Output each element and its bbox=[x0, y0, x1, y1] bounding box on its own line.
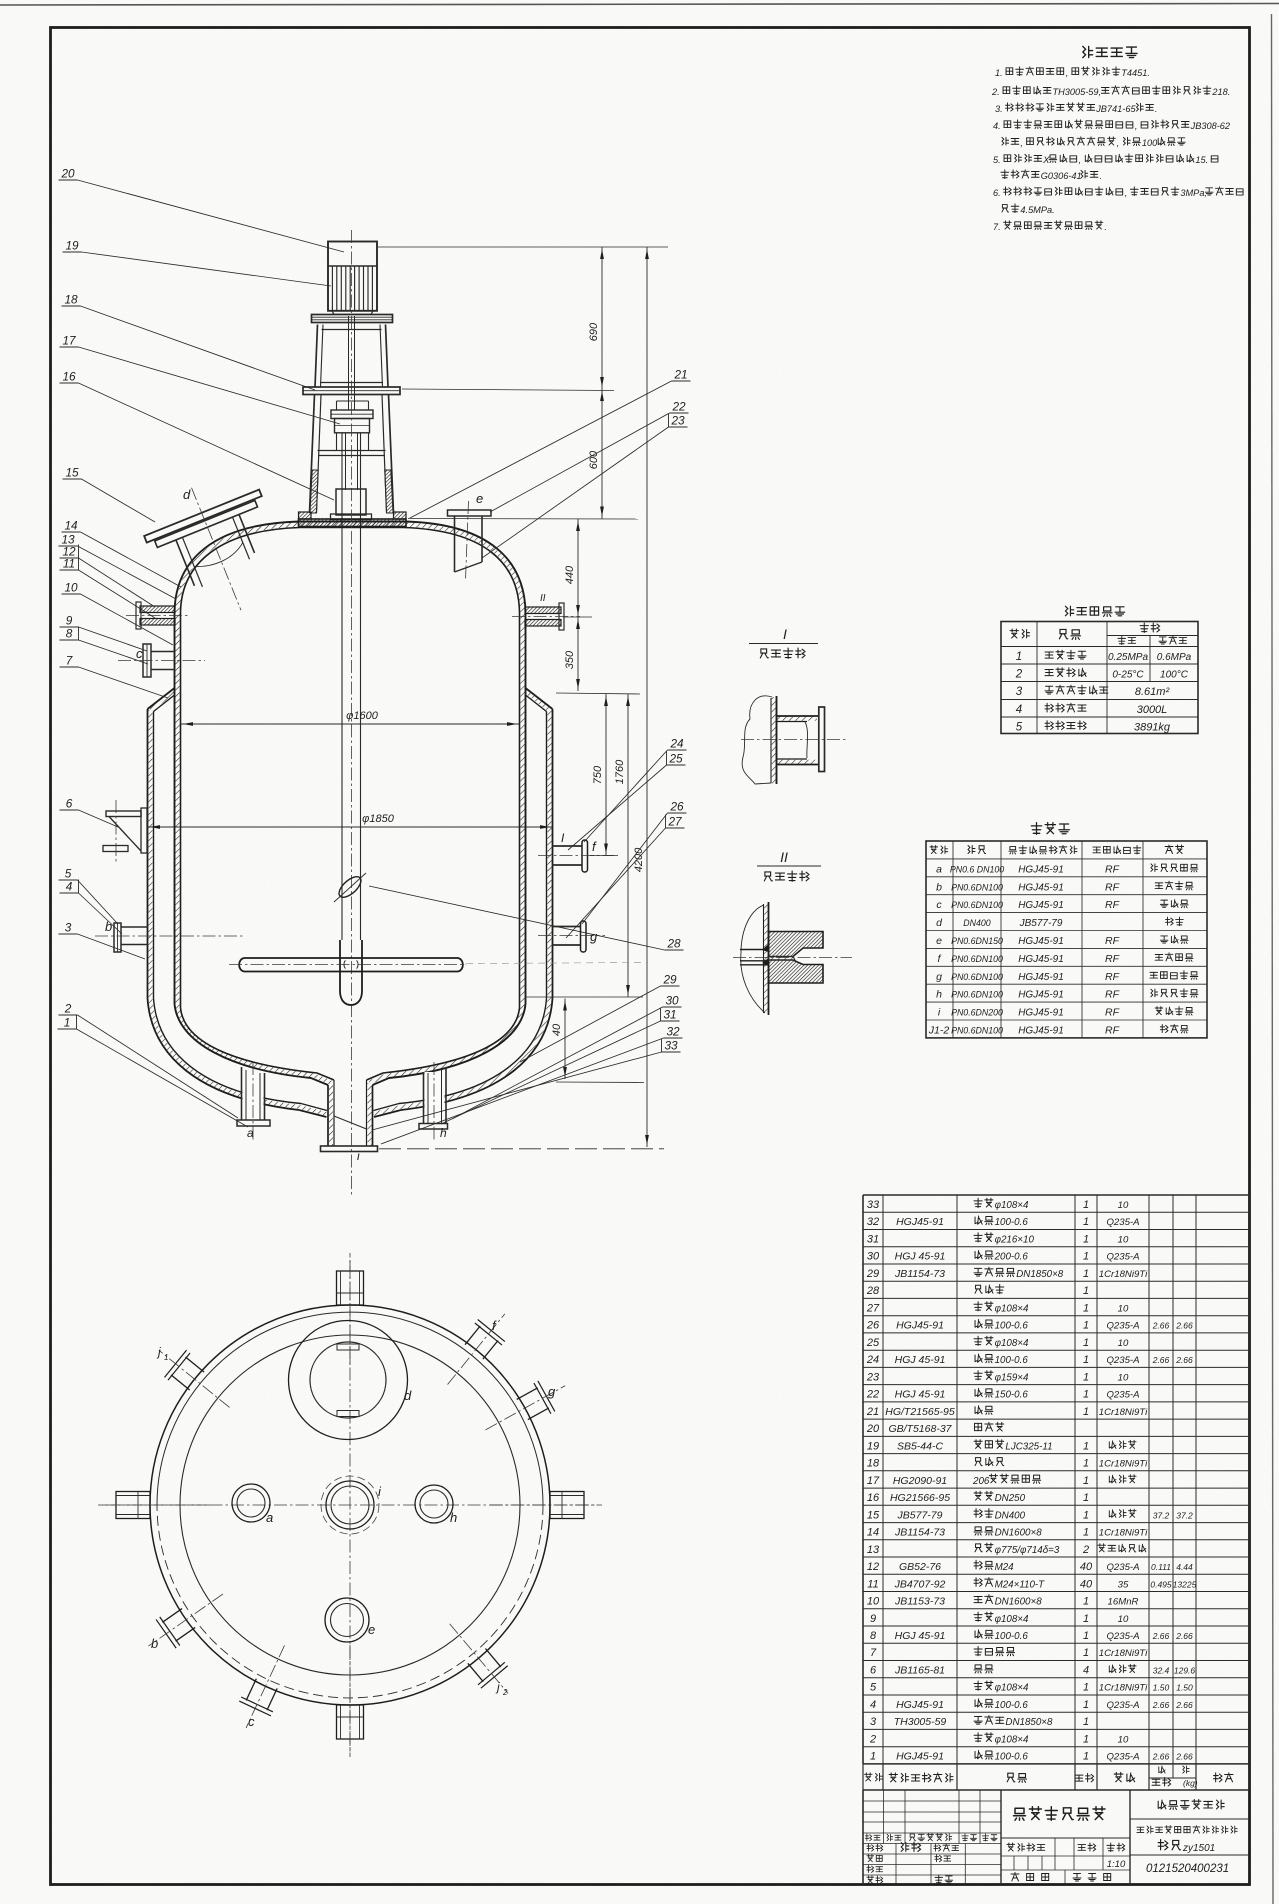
svg-text:23: 23 bbox=[866, 1371, 880, 1383]
svg-text:1Cr18Ni9Ti: 1Cr18Ni9Ti bbox=[1099, 1407, 1148, 1418]
svg-text:600: 600 bbox=[588, 450, 600, 469]
svg-text:1: 1 bbox=[1083, 1682, 1089, 1694]
svg-text:27: 27 bbox=[866, 1302, 880, 1314]
svg-text:30: 30 bbox=[665, 994, 679, 1008]
svg-text:d: d bbox=[183, 487, 191, 502]
svg-text:M24×110-T: M24×110-T bbox=[995, 1579, 1046, 1590]
svg-text:Q235-A: Q235-A bbox=[1106, 1217, 1139, 1228]
svg-text:HGJ45-91: HGJ45-91 bbox=[1018, 1008, 1064, 1019]
svg-text:Q235-A: Q235-A bbox=[1106, 1252, 1139, 1263]
svg-text:1Cr18Ni9Ti: 1Cr18Ni9Ti bbox=[1099, 1269, 1148, 1280]
svg-text:1: 1 bbox=[1083, 1371, 1089, 1383]
svg-text:19: 19 bbox=[65, 239, 79, 253]
svg-text:2.66: 2.66 bbox=[1152, 1700, 1170, 1710]
svg-text:PN0.6DN100: PN0.6DN100 bbox=[951, 972, 1003, 982]
svg-text:1: 1 bbox=[1083, 1527, 1089, 1539]
svg-text:0.25MPa: 0.25MPa bbox=[1108, 652, 1148, 663]
svg-text:31: 31 bbox=[867, 1234, 879, 1246]
svg-text:25: 25 bbox=[668, 752, 683, 766]
svg-text:20: 20 bbox=[60, 167, 75, 181]
svg-text:100-0.6: 100-0.6 bbox=[995, 1321, 1029, 1332]
svg-text:100-0.6: 100-0.6 bbox=[995, 1752, 1029, 1763]
svg-text:7: 7 bbox=[66, 654, 73, 668]
svg-text:10: 10 bbox=[1118, 1303, 1129, 1314]
svg-text:24: 24 bbox=[669, 737, 684, 751]
svg-text:28: 28 bbox=[666, 937, 681, 951]
svg-text:1Cr18Ni9Ti: 1Cr18Ni9Ti bbox=[1099, 1459, 1148, 1470]
svg-text:c: c bbox=[936, 899, 942, 911]
svg-text:HGJ45-91: HGJ45-91 bbox=[1018, 900, 1064, 911]
svg-text:3: 3 bbox=[1016, 686, 1023, 698]
svg-text:15: 15 bbox=[65, 466, 79, 480]
svg-text:30: 30 bbox=[867, 1251, 880, 1263]
svg-text:HGJ45-91: HGJ45-91 bbox=[1018, 954, 1064, 965]
svg-text:HGJ45-91: HGJ45-91 bbox=[896, 1320, 944, 1332]
svg-text:HGJ45-91: HGJ45-91 bbox=[1018, 972, 1064, 983]
svg-text:0-25°C: 0-25°C bbox=[1112, 670, 1144, 681]
svg-text:1.50: 1.50 bbox=[1176, 1683, 1193, 1693]
svg-text:10: 10 bbox=[64, 581, 78, 595]
svg-text:5: 5 bbox=[65, 867, 72, 881]
svg-text:37.2: 37.2 bbox=[1176, 1510, 1193, 1520]
svg-text:10: 10 bbox=[1118, 1372, 1129, 1383]
svg-text:16: 16 bbox=[62, 370, 76, 384]
svg-text:g: g bbox=[590, 929, 598, 944]
svg-text:φ1600: φ1600 bbox=[346, 710, 379, 722]
svg-text:RF: RF bbox=[1105, 953, 1120, 965]
svg-text:0.495: 0.495 bbox=[1150, 1579, 1172, 1589]
svg-text:1760: 1760 bbox=[614, 759, 626, 784]
svg-text:100-0.6: 100-0.6 bbox=[995, 1700, 1029, 1711]
svg-text:33: 33 bbox=[867, 1199, 880, 1211]
svg-text:M24: M24 bbox=[995, 1562, 1015, 1573]
svg-text:DN400: DN400 bbox=[995, 1510, 1026, 1521]
svg-text:17: 17 bbox=[867, 1475, 880, 1487]
svg-text:1: 1 bbox=[870, 1751, 876, 1763]
svg-text:40: 40 bbox=[1080, 1578, 1093, 1590]
svg-text:0.6MPa: 0.6MPa bbox=[1157, 652, 1192, 663]
svg-text:GB52-76: GB52-76 bbox=[899, 1561, 941, 1573]
svg-text:1: 1 bbox=[1083, 1509, 1089, 1521]
svg-text:13: 13 bbox=[867, 1544, 880, 1556]
svg-text:29: 29 bbox=[866, 1268, 879, 1280]
svg-text:100-0.6: 100-0.6 bbox=[995, 1355, 1029, 1366]
svg-text:32: 32 bbox=[867, 1216, 879, 1228]
svg-text:(kg): (kg) bbox=[1183, 1778, 1198, 1788]
svg-text:φ108×4: φ108×4 bbox=[995, 1303, 1029, 1314]
svg-text:0121520400231: 0121520400231 bbox=[1146, 1863, 1229, 1875]
svg-text:40: 40 bbox=[1080, 1561, 1093, 1573]
svg-text:1: 1 bbox=[1083, 1320, 1089, 1332]
svg-text:a: a bbox=[936, 863, 942, 875]
svg-text:13225: 13225 bbox=[1173, 1579, 1197, 1589]
svg-text:.: . bbox=[1100, 171, 1103, 181]
svg-text:SB5-44-C: SB5-44-C bbox=[897, 1440, 944, 1452]
svg-text:33: 33 bbox=[664, 1039, 678, 1053]
svg-text:100-0.6: 100-0.6 bbox=[995, 1217, 1029, 1228]
svg-text:e: e bbox=[476, 491, 483, 506]
svg-text:4: 4 bbox=[870, 1699, 876, 1711]
svg-text:a: a bbox=[247, 1126, 254, 1140]
svg-text:DN1600×8: DN1600×8 bbox=[995, 1528, 1043, 1539]
svg-text:28: 28 bbox=[866, 1285, 880, 1297]
svg-text:JB1154-73: JB1154-73 bbox=[894, 1268, 945, 1280]
svg-text:2.66: 2.66 bbox=[1152, 1752, 1170, 1762]
svg-text:I: I bbox=[783, 626, 787, 642]
svg-text:RF: RF bbox=[1105, 1025, 1120, 1037]
svg-text:2.66: 2.66 bbox=[1175, 1355, 1193, 1365]
svg-text:4.: 4. bbox=[993, 121, 1001, 131]
svg-text:HGJ 45-91: HGJ 45-91 bbox=[895, 1251, 946, 1263]
svg-text:JB577-79: JB577-79 bbox=[897, 1509, 943, 1521]
svg-text:24: 24 bbox=[866, 1354, 879, 1366]
svg-text:PN0.6DN200: PN0.6DN200 bbox=[951, 1008, 1003, 1018]
svg-text:5: 5 bbox=[870, 1682, 877, 1694]
svg-text:JB1154-73: JB1154-73 bbox=[894, 1527, 945, 1539]
svg-text:6.: 6. bbox=[993, 188, 1001, 198]
svg-text:PN0.6DN100: PN0.6DN100 bbox=[951, 900, 1003, 910]
svg-text:22: 22 bbox=[866, 1389, 879, 1401]
svg-text:GB/T5168-37: GB/T5168-37 bbox=[888, 1423, 952, 1435]
svg-text:HGJ45-91: HGJ45-91 bbox=[896, 1216, 944, 1228]
svg-text:φ216×10: φ216×10 bbox=[995, 1235, 1035, 1246]
svg-text:129.6: 129.6 bbox=[1174, 1666, 1196, 1676]
svg-text:8: 8 bbox=[870, 1630, 877, 1642]
svg-text:1: 1 bbox=[1083, 1630, 1089, 1642]
svg-text:4.5MPa.: 4.5MPa. bbox=[1020, 205, 1054, 215]
svg-text:11: 11 bbox=[63, 557, 75, 571]
svg-text:206: 206 bbox=[972, 1476, 990, 1487]
svg-text:1: 1 bbox=[1083, 1751, 1089, 1763]
svg-text:HGJ45-91: HGJ45-91 bbox=[1018, 990, 1064, 1001]
svg-text:.: . bbox=[1155, 104, 1158, 114]
svg-text:10: 10 bbox=[1118, 1734, 1129, 1745]
svg-text:2.66: 2.66 bbox=[1175, 1700, 1193, 1710]
svg-text:J1-2: J1-2 bbox=[928, 1025, 950, 1037]
svg-text:1: 1 bbox=[1083, 1613, 1089, 1625]
svg-text:1: 1 bbox=[1083, 1492, 1089, 1504]
svg-text:g: g bbox=[548, 1384, 556, 1399]
svg-text:2.66: 2.66 bbox=[1152, 1631, 1170, 1641]
svg-text:T4451.: T4451. bbox=[1121, 68, 1150, 78]
svg-text:RF: RF bbox=[1105, 1007, 1120, 1019]
svg-text:2.66: 2.66 bbox=[1175, 1631, 1193, 1641]
svg-text:3MPa,: 3MPa, bbox=[1180, 188, 1207, 198]
svg-text:DN1850×8: DN1850×8 bbox=[1005, 1717, 1053, 1728]
svg-text:1: 1 bbox=[1083, 1596, 1089, 1608]
svg-text:1.50: 1.50 bbox=[1153, 1683, 1170, 1693]
svg-text:DN400: DN400 bbox=[963, 918, 990, 928]
svg-text:.: . bbox=[1104, 222, 1107, 232]
svg-text:TH3005-59: TH3005-59 bbox=[894, 1716, 947, 1728]
svg-text:1Cr18Ni9Ti: 1Cr18Ni9Ti bbox=[1099, 1528, 1148, 1539]
svg-text:PN0.6 DN100: PN0.6 DN100 bbox=[950, 864, 1004, 874]
svg-text:16MnR: 16MnR bbox=[1108, 1597, 1139, 1608]
svg-text:18: 18 bbox=[867, 1458, 880, 1470]
svg-text:15.: 15. bbox=[1195, 155, 1208, 165]
svg-text:7: 7 bbox=[870, 1647, 877, 1659]
svg-text:HGJ45-91: HGJ45-91 bbox=[896, 1699, 944, 1711]
svg-text:φ108×4: φ108×4 bbox=[995, 1200, 1029, 1211]
svg-text:3891kg: 3891kg bbox=[1134, 722, 1171, 734]
svg-text:h: h bbox=[440, 1126, 447, 1140]
svg-text:JB577-79: JB577-79 bbox=[1019, 918, 1063, 929]
svg-text:HGJ45-91: HGJ45-91 bbox=[1018, 882, 1064, 893]
svg-text:HGJ45-91: HGJ45-91 bbox=[1018, 864, 1064, 875]
svg-text:PN0.6DN100: PN0.6DN100 bbox=[951, 990, 1003, 1000]
svg-text:φ1850: φ1850 bbox=[362, 813, 395, 825]
svg-text:8: 8 bbox=[66, 627, 73, 641]
svg-text:1: 1 bbox=[1083, 1733, 1089, 1745]
svg-text:1: 1 bbox=[1016, 651, 1022, 663]
svg-text:,: , bbox=[1135, 121, 1138, 131]
svg-text:16: 16 bbox=[867, 1492, 880, 1504]
svg-text:a: a bbox=[266, 1510, 273, 1525]
svg-text:100°C: 100°C bbox=[1160, 670, 1189, 681]
svg-text:HG2090-91: HG2090-91 bbox=[893, 1475, 947, 1487]
svg-text:2.: 2. bbox=[991, 87, 1000, 97]
svg-text:Q235-A: Q235-A bbox=[1106, 1355, 1139, 1366]
svg-text:Q235-A: Q235-A bbox=[1106, 1752, 1139, 1763]
svg-text:HGJ 45-91: HGJ 45-91 bbox=[895, 1354, 946, 1366]
svg-text:,: , bbox=[1079, 155, 1082, 165]
svg-text:3000L: 3000L bbox=[1137, 704, 1168, 716]
svg-text:b: b bbox=[151, 1636, 158, 1651]
svg-text:HGJ 45-91: HGJ 45-91 bbox=[895, 1389, 946, 1401]
svg-text:22: 22 bbox=[671, 400, 686, 414]
svg-text:G0306-41: G0306-41 bbox=[1041, 171, 1082, 181]
svg-text:TH3005-59,: TH3005-59, bbox=[1053, 87, 1102, 97]
svg-text:h: h bbox=[936, 989, 942, 1001]
svg-text:750: 750 bbox=[592, 765, 604, 784]
svg-text:218.: 218. bbox=[1211, 87, 1230, 97]
svg-text:JB1165-81: JB1165-81 bbox=[894, 1665, 945, 1677]
svg-text:3: 3 bbox=[65, 921, 72, 935]
svg-text:RF: RF bbox=[1105, 935, 1120, 947]
svg-text:JB308-62: JB308-62 bbox=[1190, 121, 1230, 131]
svg-text:1Cr18Ni9Ti: 1Cr18Ni9Ti bbox=[1099, 1648, 1148, 1659]
svg-text:φ108×4: φ108×4 bbox=[995, 1683, 1029, 1694]
svg-text:c: c bbox=[248, 1714, 255, 1729]
svg-text:HGJ45-91: HGJ45-91 bbox=[1018, 936, 1064, 947]
svg-text:Q235-A: Q235-A bbox=[1106, 1700, 1139, 1711]
svg-text:19: 19 bbox=[867, 1440, 879, 1452]
svg-text:4: 4 bbox=[66, 880, 73, 894]
svg-text:PN0.6DN100: PN0.6DN100 bbox=[951, 1026, 1003, 1036]
svg-text:2: 2 bbox=[1082, 1544, 1089, 1556]
svg-text:21: 21 bbox=[673, 368, 687, 382]
svg-text:PN0.6DN100: PN0.6DN100 bbox=[951, 882, 1003, 892]
svg-text:200-0.6: 200-0.6 bbox=[994, 1252, 1029, 1263]
svg-text:440: 440 bbox=[564, 565, 576, 584]
svg-text:DN250: DN250 bbox=[995, 1493, 1026, 1504]
svg-text:RF: RF bbox=[1105, 971, 1120, 983]
svg-text:5: 5 bbox=[1016, 722, 1023, 734]
svg-text:h: h bbox=[450, 1510, 457, 1525]
svg-text:DN1600×8: DN1600×8 bbox=[995, 1597, 1043, 1608]
svg-text:1: 1 bbox=[1083, 1285, 1089, 1297]
svg-text:PN0.6DN150: PN0.6DN150 bbox=[951, 936, 1003, 946]
svg-text:,: , bbox=[1125, 188, 1128, 198]
svg-text:Q235-A: Q235-A bbox=[1106, 1631, 1139, 1642]
svg-text:10: 10 bbox=[1118, 1235, 1129, 1246]
svg-text:2: 2 bbox=[1015, 669, 1023, 681]
svg-text:4: 4 bbox=[1083, 1665, 1089, 1677]
svg-text:1: 1 bbox=[1083, 1337, 1089, 1349]
svg-text:14: 14 bbox=[867, 1527, 879, 1539]
svg-text:21: 21 bbox=[866, 1406, 879, 1418]
svg-text:31: 31 bbox=[663, 1008, 676, 1022]
svg-text:φ775/φ714δ=3: φ775/φ714δ=3 bbox=[995, 1545, 1060, 1556]
svg-text:HGJ 45-91: HGJ 45-91 bbox=[895, 1630, 946, 1642]
svg-text:690: 690 bbox=[588, 322, 600, 341]
svg-text:17: 17 bbox=[62, 334, 76, 348]
svg-text:12: 12 bbox=[867, 1561, 879, 1573]
svg-text:φ108×4: φ108×4 bbox=[995, 1614, 1029, 1625]
svg-text:Q235-A: Q235-A bbox=[1106, 1321, 1139, 1332]
svg-text:b: b bbox=[936, 881, 942, 893]
svg-text:35: 35 bbox=[1118, 1579, 1129, 1590]
svg-text:1: 1 bbox=[1083, 1234, 1089, 1246]
svg-text:HG/T21565-95: HG/T21565-95 bbox=[885, 1406, 955, 1418]
svg-text:32: 32 bbox=[666, 1025, 680, 1039]
svg-text:2: 2 bbox=[869, 1733, 876, 1745]
svg-text:40: 40 bbox=[551, 1023, 563, 1036]
svg-text:4.44: 4.44 bbox=[1176, 1562, 1193, 1572]
svg-text:φ108×4: φ108×4 bbox=[995, 1734, 1029, 1745]
svg-text:1: 1 bbox=[1083, 1458, 1089, 1470]
svg-text:14: 14 bbox=[64, 519, 78, 533]
svg-text:2.66: 2.66 bbox=[1152, 1321, 1170, 1331]
svg-text:2.66: 2.66 bbox=[1175, 1752, 1193, 1762]
svg-text:2: 2 bbox=[64, 1002, 72, 1016]
svg-text:JB741-65: JB741-65 bbox=[1095, 104, 1136, 114]
svg-text:1: 1 bbox=[1083, 1440, 1089, 1452]
svg-text:350: 350 bbox=[564, 650, 576, 669]
svg-text:1: 1 bbox=[1083, 1268, 1089, 1280]
svg-text:,: , bbox=[1117, 138, 1120, 148]
svg-text:DN1850×8: DN1850×8 bbox=[1016, 1269, 1064, 1280]
svg-text:100: 100 bbox=[1142, 138, 1158, 148]
svg-text:23: 23 bbox=[670, 414, 685, 428]
svg-text:1: 1 bbox=[1083, 1389, 1089, 1401]
svg-text:1: 1 bbox=[1083, 1699, 1089, 1711]
svg-text:1:10: 1:10 bbox=[1107, 1859, 1126, 1870]
svg-text:3: 3 bbox=[870, 1716, 877, 1728]
svg-text:RF: RF bbox=[1105, 881, 1120, 893]
svg-text:1: 1 bbox=[1083, 1716, 1089, 1728]
svg-text:26: 26 bbox=[669, 800, 684, 814]
svg-text:32.4: 32.4 bbox=[1153, 1666, 1170, 1676]
svg-text:1: 1 bbox=[1083, 1199, 1089, 1211]
svg-text:d: d bbox=[404, 1388, 412, 1403]
svg-text:i: i bbox=[357, 1149, 360, 1163]
svg-text:e: e bbox=[368, 1622, 375, 1637]
svg-text:φ159×4: φ159×4 bbox=[995, 1372, 1029, 1383]
svg-text:7.: 7. bbox=[993, 222, 1001, 232]
svg-text:JB4707-92: JB4707-92 bbox=[894, 1578, 946, 1590]
svg-text:37.2: 37.2 bbox=[1153, 1510, 1170, 1520]
svg-text:zy1501: zy1501 bbox=[1182, 1843, 1215, 1854]
svg-text:1: 1 bbox=[1083, 1302, 1089, 1314]
svg-text:LJC325-11: LJC325-11 bbox=[1005, 1441, 1052, 1452]
svg-text:10: 10 bbox=[1118, 1614, 1129, 1625]
svg-text:15: 15 bbox=[867, 1509, 880, 1521]
svg-text:Q235-A: Q235-A bbox=[1106, 1390, 1139, 1401]
svg-text:1: 1 bbox=[64, 1016, 71, 1030]
svg-text:HG21566-95: HG21566-95 bbox=[890, 1492, 950, 1504]
svg-text:1Cr18Ni9Ti: 1Cr18Ni9Ti bbox=[1099, 1683, 1148, 1694]
svg-text:9: 9 bbox=[66, 614, 73, 628]
svg-text:10: 10 bbox=[1118, 1200, 1129, 1211]
svg-text:,: , bbox=[1020, 138, 1023, 148]
svg-text:8.61m²: 8.61m² bbox=[1135, 686, 1170, 698]
svg-text:φ108×4: φ108×4 bbox=[995, 1338, 1029, 1349]
svg-text:150-0.6: 150-0.6 bbox=[995, 1390, 1029, 1401]
svg-text:18: 18 bbox=[64, 293, 78, 307]
svg-text:g: g bbox=[936, 971, 942, 983]
svg-text:Q235-A: Q235-A bbox=[1106, 1562, 1139, 1573]
svg-text:II: II bbox=[780, 849, 788, 865]
svg-text:1: 1 bbox=[1083, 1216, 1089, 1228]
svg-text:29: 29 bbox=[662, 973, 677, 987]
svg-text:RF: RF bbox=[1105, 899, 1120, 911]
svg-text:1: 1 bbox=[1083, 1406, 1089, 1418]
svg-text:10: 10 bbox=[1118, 1338, 1129, 1349]
svg-text:6: 6 bbox=[66, 797, 73, 811]
svg-text:9: 9 bbox=[870, 1613, 876, 1625]
svg-text:e: e bbox=[936, 935, 942, 947]
svg-text:6: 6 bbox=[870, 1665, 877, 1677]
svg-text:2.66: 2.66 bbox=[1152, 1355, 1170, 1365]
svg-text:1: 1 bbox=[1083, 1251, 1089, 1263]
svg-text:,: , bbox=[1066, 68, 1069, 78]
svg-text:HGJ45-91: HGJ45-91 bbox=[1018, 1026, 1064, 1037]
svg-text:3.: 3. bbox=[995, 104, 1003, 114]
svg-text:1: 1 bbox=[164, 1353, 168, 1362]
svg-text:RF: RF bbox=[1105, 989, 1120, 1001]
svg-text:1: 1 bbox=[1083, 1647, 1089, 1659]
svg-text:2: 2 bbox=[502, 1688, 508, 1697]
svg-text:HGJ45-91: HGJ45-91 bbox=[896, 1751, 944, 1763]
svg-text:1: 1 bbox=[1083, 1354, 1089, 1366]
svg-text:25: 25 bbox=[866, 1337, 880, 1349]
svg-text:4: 4 bbox=[1016, 704, 1022, 716]
svg-text:2.66: 2.66 bbox=[1175, 1321, 1193, 1331]
svg-text:10: 10 bbox=[867, 1596, 880, 1608]
svg-text:100-0.6: 100-0.6 bbox=[995, 1631, 1029, 1642]
svg-text:RF: RF bbox=[1105, 863, 1120, 875]
svg-text:JB1153-73: JB1153-73 bbox=[894, 1596, 945, 1608]
svg-text:11: 11 bbox=[867, 1578, 878, 1590]
svg-text:0.111: 0.111 bbox=[1151, 1562, 1171, 1572]
svg-text:5.: 5. bbox=[993, 155, 1001, 165]
svg-text:II: II bbox=[540, 593, 546, 604]
svg-text:1: 1 bbox=[1083, 1475, 1089, 1487]
svg-text:PN0.6DN100: PN0.6DN100 bbox=[951, 954, 1003, 964]
svg-text:26: 26 bbox=[866, 1320, 880, 1332]
svg-text:1.: 1. bbox=[995, 68, 1003, 78]
svg-text:27: 27 bbox=[667, 815, 682, 829]
svg-text:20: 20 bbox=[866, 1423, 880, 1435]
